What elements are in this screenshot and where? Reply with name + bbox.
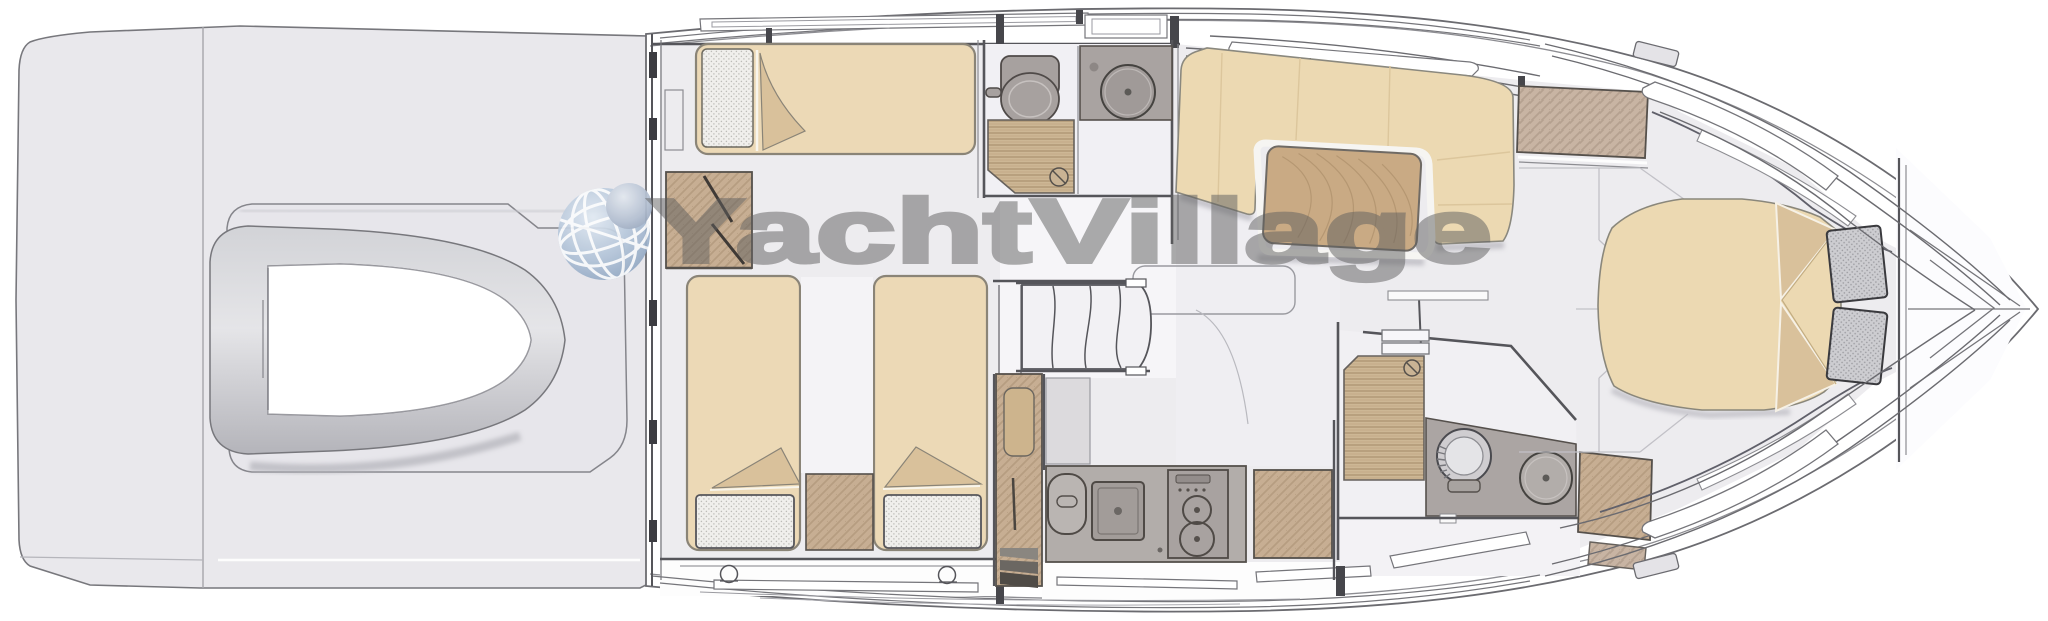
svg-text:YachtVillage: YachtVillage [648, 182, 1492, 282]
